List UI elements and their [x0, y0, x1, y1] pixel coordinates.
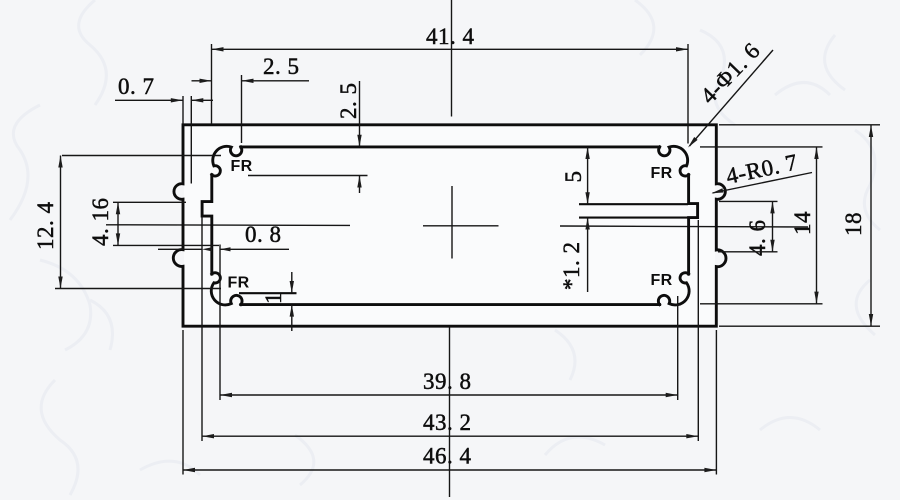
svg-text:0. 7: 0. 7 — [118, 74, 155, 99]
svg-text:43. 2: 43. 2 — [423, 410, 472, 435]
svg-text:5: 5 — [561, 171, 586, 183]
svg-text:46. 4: 46. 4 — [423, 444, 472, 469]
svg-text:FR: FR — [651, 272, 673, 289]
svg-text:2. 5: 2. 5 — [336, 83, 361, 120]
svg-text:1: 1 — [261, 292, 286, 304]
svg-text:4. 16: 4. 16 — [88, 198, 113, 247]
svg-text:FR: FR — [228, 275, 250, 292]
svg-text:39. 8: 39. 8 — [423, 369, 472, 394]
svg-text:2. 5: 2. 5 — [263, 54, 300, 79]
svg-text:12. 4: 12. 4 — [33, 202, 58, 251]
svg-text:14: 14 — [790, 211, 815, 235]
svg-text:0. 8: 0. 8 — [245, 222, 282, 247]
svg-text:FR: FR — [231, 158, 253, 175]
svg-text:4. 6: 4. 6 — [745, 220, 770, 257]
svg-text:*1. 2: *1. 2 — [559, 242, 584, 291]
svg-text:FR: FR — [651, 165, 673, 182]
svg-text:41. 4: 41. 4 — [426, 24, 475, 49]
svg-text:18: 18 — [841, 212, 866, 236]
